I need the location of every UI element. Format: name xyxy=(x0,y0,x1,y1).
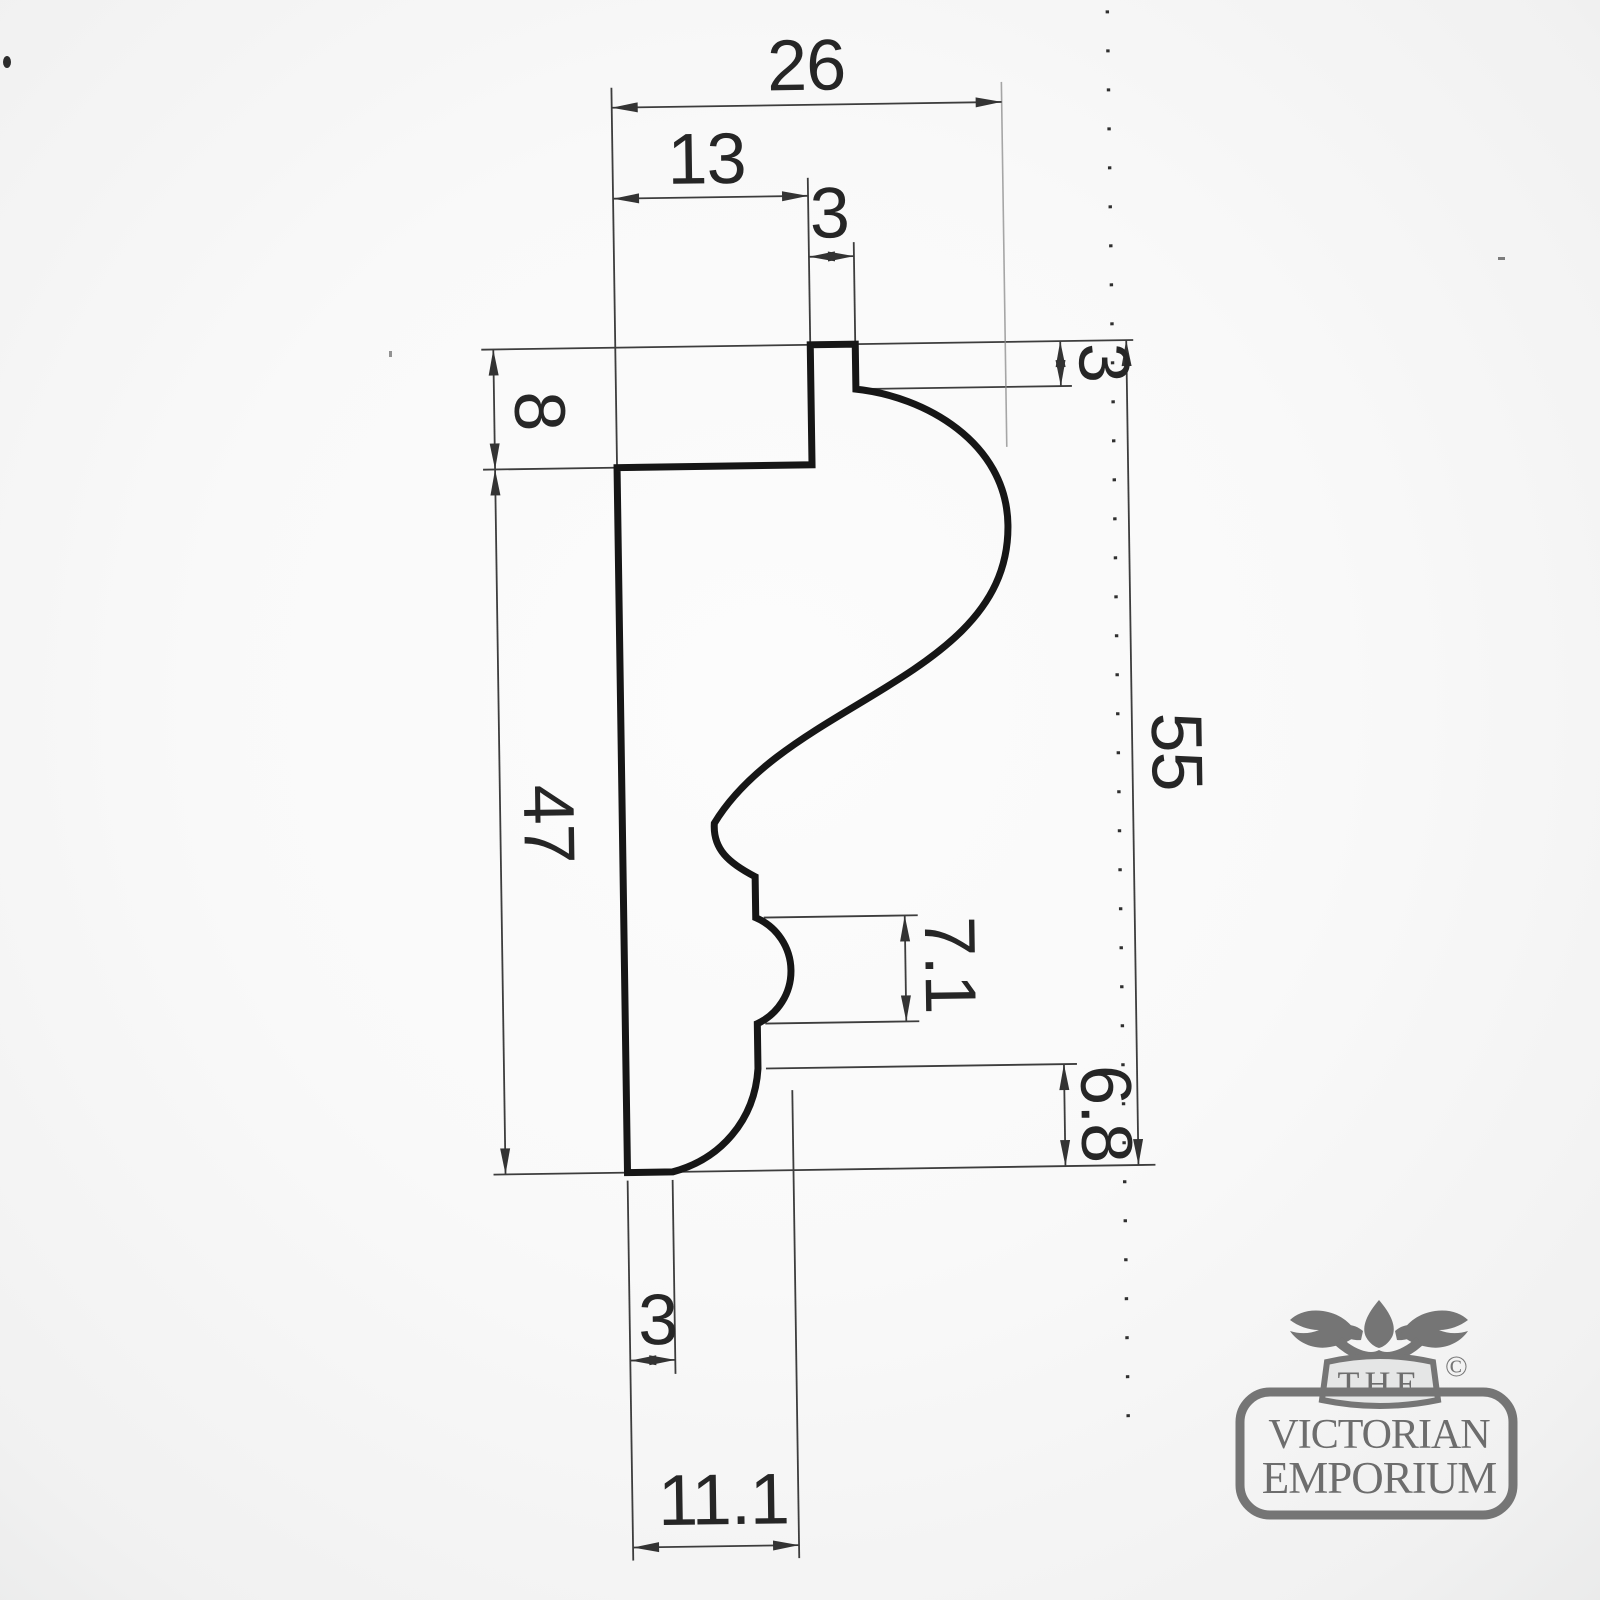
dim-base-width: 3 xyxy=(638,1280,678,1361)
victorian-emporium-logo: THE © VICTORIAN EMPORIUM xyxy=(1240,1300,1513,1515)
dim-base-height: 6.8 xyxy=(1065,1064,1146,1162)
dim-bead-offset: 11.1 xyxy=(657,1459,789,1541)
dim-overall-height: 55 xyxy=(1136,712,1217,791)
dim-top-step-height: 8 xyxy=(499,391,580,431)
dim-tab-width: 3 xyxy=(809,173,849,254)
drawing-sheet: 26 13 3 8 47 3 55 7.1 6.8 3 11.1 xyxy=(476,9,1228,1563)
dim-left-height: 47 xyxy=(508,784,589,863)
dim-overall-width: 26 xyxy=(766,25,845,106)
dim-upper-width: 13 xyxy=(667,119,746,200)
dotted-reference-line xyxy=(1107,10,1128,1440)
dim-bead-height: 7.1 xyxy=(909,916,990,1014)
scan-specks xyxy=(3,56,1505,357)
dimension-texts: 26 13 3 8 47 3 55 7.1 6.8 3 11.1 xyxy=(494,20,1228,1543)
crown-icon xyxy=(1290,1300,1468,1362)
profile-outline xyxy=(615,342,1017,1173)
logo-the-text: THE xyxy=(1338,1364,1423,1404)
logo-emporium-text: EMPORIUM xyxy=(1262,1453,1497,1503)
technical-drawing-canvas: 26 13 3 8 47 3 55 7.1 6.8 3 11.1 xyxy=(0,0,1600,1600)
scanned-drawing-page: 26 13 3 8 47 3 55 7.1 6.8 3 11.1 xyxy=(0,0,1600,1600)
copyright-icon: © xyxy=(1445,1350,1468,1383)
dim-right-step-height: 3 xyxy=(1063,342,1144,382)
logo-victorian-text: VICTORIAN xyxy=(1268,1412,1490,1458)
